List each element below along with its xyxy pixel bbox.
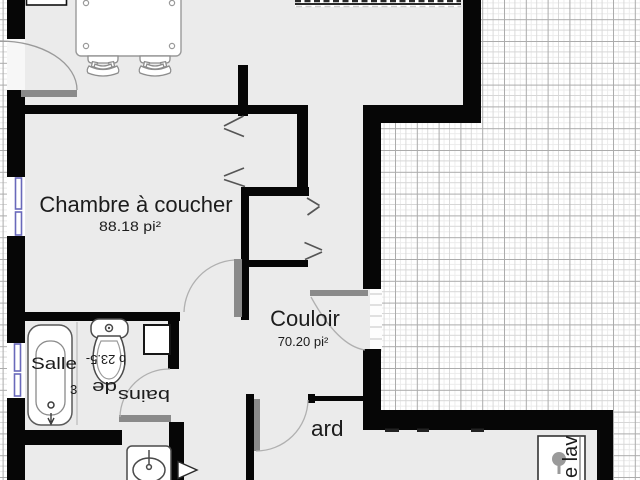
svg-text:ard: ard bbox=[311, 416, 344, 441]
svg-text:88.18 pi²: 88.18 pi² bbox=[99, 218, 161, 234]
svg-text:e lav: e lav bbox=[560, 436, 582, 478]
svg-text:b 23.5-: b 23.5- bbox=[86, 352, 126, 367]
svg-text:Chambre à coucher: Chambre à coucher bbox=[39, 192, 232, 217]
svg-text:de: de bbox=[92, 378, 117, 397]
svg-text:Salle: Salle bbox=[31, 355, 77, 373]
svg-text:bains: bains bbox=[118, 386, 170, 405]
svg-text:70.20 pi²: 70.20 pi² bbox=[278, 334, 329, 349]
svg-text:3: 3 bbox=[70, 382, 77, 397]
svg-text:Couloir: Couloir bbox=[270, 306, 340, 331]
